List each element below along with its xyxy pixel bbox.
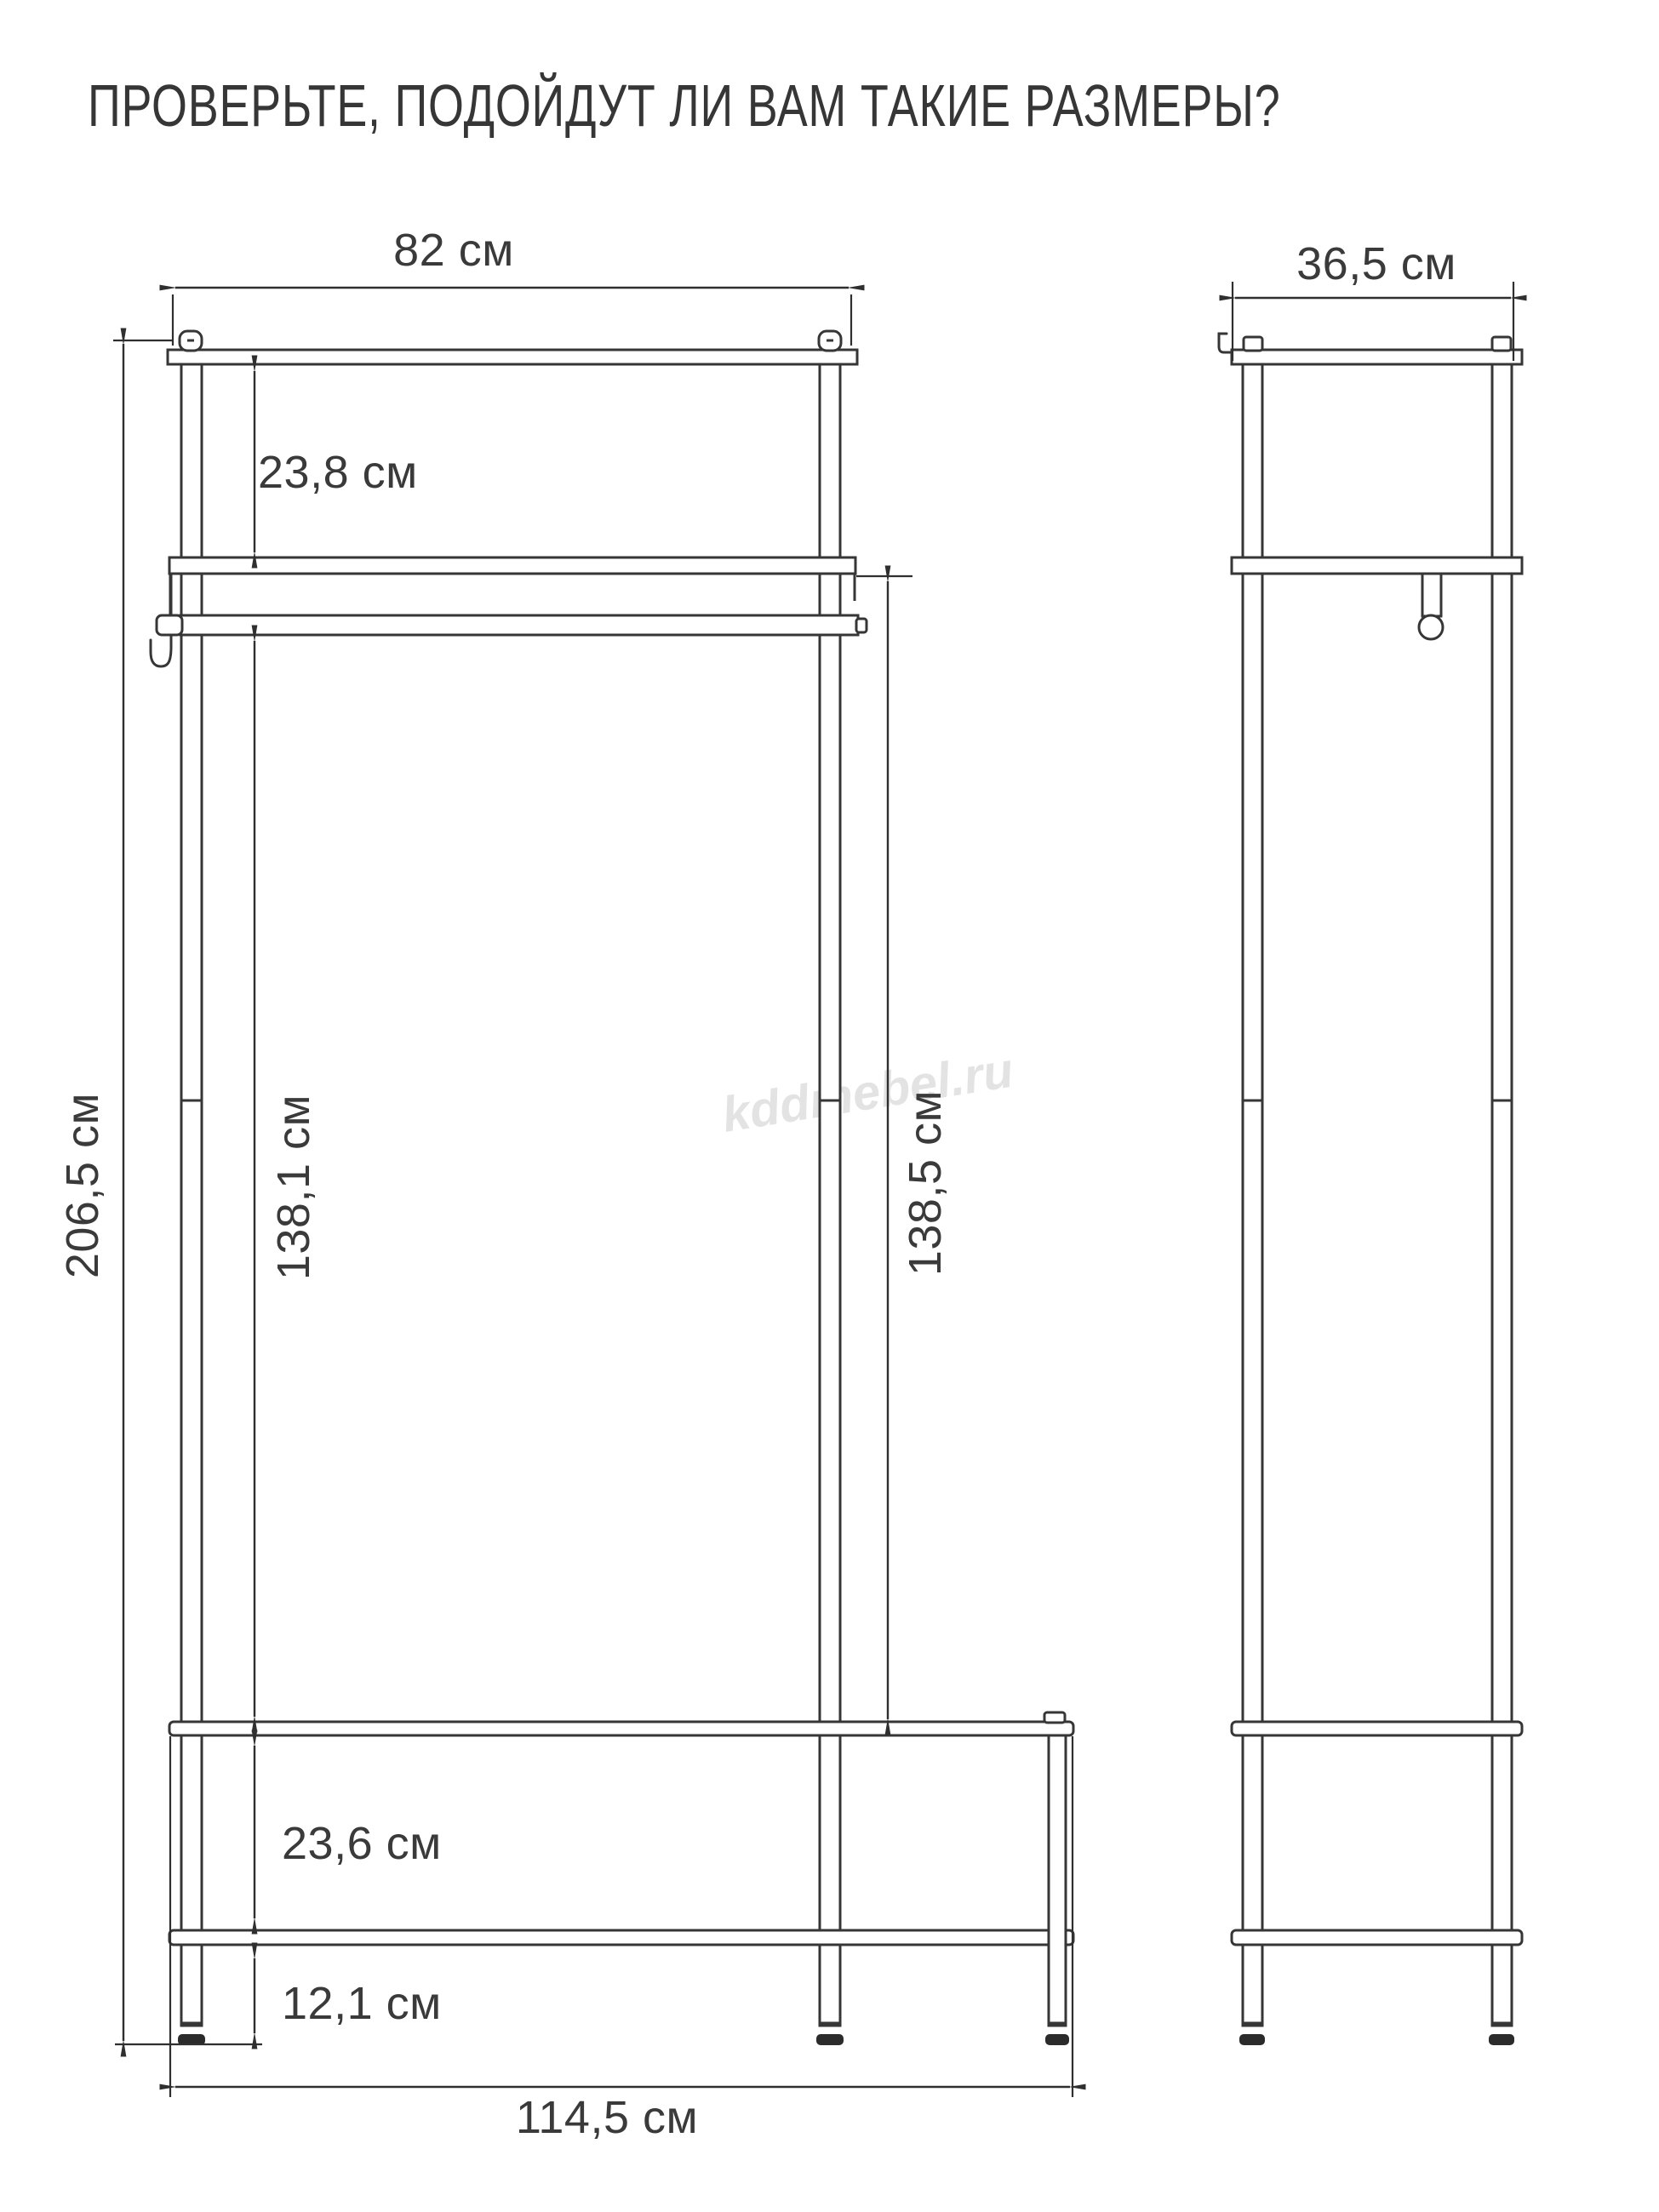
dim-label-top-shelf-height: 23,8 см: [258, 447, 418, 498]
hanging-rod: [180, 615, 858, 635]
side-bolt-left: [1244, 337, 1262, 351]
drawing-page: ПРОВЕРЬТЕ, ПОДОЙДУТ ЛИ ВАМ ТАКИЕ РАЗМЕРЫ…: [0, 0, 1659, 2212]
dim-label-inner-height-right: 138,5 см: [900, 1090, 951, 1276]
dim-label-inner-height-left: 138,1 см: [268, 1095, 319, 1280]
side-foot-pad-left: [1239, 2034, 1265, 2045]
side-right-post: [1492, 361, 1512, 2026]
side-bottom-bar: [1232, 1930, 1522, 1945]
dim-label-bench-clearance: 23,6 см: [282, 1818, 442, 1869]
side-foot-pad-right: [1489, 2034, 1514, 2045]
side-bench-seat: [1232, 1722, 1522, 1735]
bench-right-leg: [1049, 1735, 1066, 2026]
side-second-shelf: [1232, 557, 1522, 574]
dim-label-base-clearance: 12,1 см: [282, 1978, 442, 2029]
dim-label-depth: 36,5 см: [1296, 238, 1456, 289]
bench-seat: [169, 1722, 1073, 1735]
dimension-annotations: 82 см 36,5 см 206,5 см 23,8 см 138,1 см …: [57, 225, 1513, 2143]
top-shelf: [168, 350, 857, 364]
foot-pad-middle: [816, 2034, 844, 2045]
front-left-post: [181, 361, 202, 2026]
side-rod-section: [1419, 615, 1443, 639]
side-bolt-right: [1492, 337, 1511, 351]
side-left-post: [1243, 361, 1262, 2026]
dim-label-top-width: 82 см: [393, 225, 514, 276]
front-right-post: [820, 361, 840, 2026]
foot-pad-right: [1045, 2034, 1069, 2045]
second-shelf: [169, 557, 855, 574]
bench-bolt-cap: [1044, 1712, 1065, 1723]
side-rod-bracket: [1422, 574, 1441, 616]
dim-label-total-height: 206,5 см: [57, 1093, 108, 1278]
bench-bottom-bar: [169, 1930, 1073, 1945]
hanging-rod-right-cap: [856, 619, 867, 632]
hanging-rod-left-cap: [157, 615, 182, 635]
page-title: ПРОВЕРЬТЕ, ПОДОЙДУТ ЛИ ВАМ ТАКИЕ РАЗМЕРЫ…: [88, 71, 1280, 140]
side-view: [1219, 334, 1522, 2045]
side-top-shelf: [1232, 350, 1522, 364]
watermark: kddmebel.ru: [718, 1043, 1017, 1143]
dim-label-base-width: 114,5 см: [516, 2092, 698, 2143]
